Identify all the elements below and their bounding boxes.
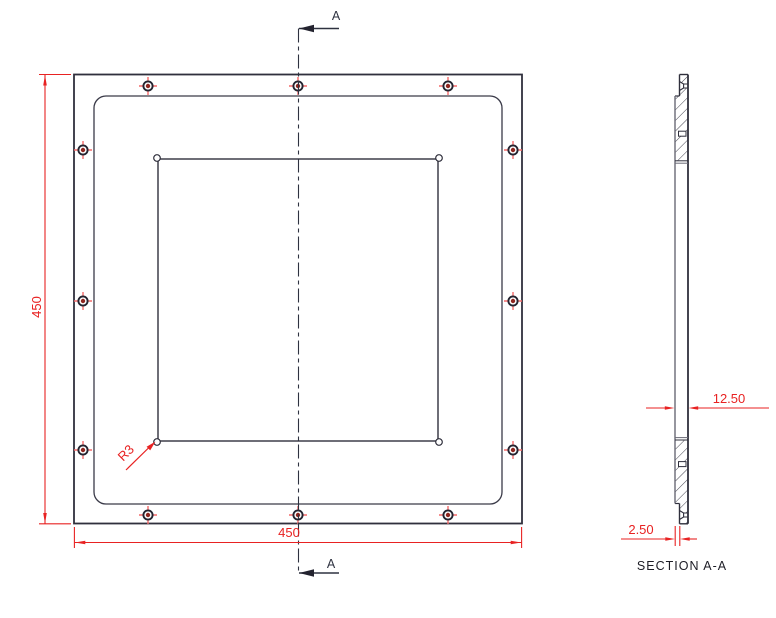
section-label-bottom: A: [327, 557, 336, 571]
section-hatching: [675, 75, 688, 524]
fillet-radius-callout: R3: [115, 442, 156, 471]
dimension-thickness-text: 12.50: [713, 391, 746, 406]
hole-marker: [439, 77, 457, 95]
dimension-step-text: 2.50: [628, 522, 653, 537]
section-arrow-bottom: A: [299, 557, 339, 577]
fillet-radius-text: R3: [115, 442, 137, 464]
hole-marker: [504, 141, 522, 159]
groove-slot-top: [679, 131, 687, 136]
section-view: 12.50 2.50 SECTION A-A: [621, 75, 769, 574]
dimension-height-450: 450: [29, 75, 71, 524]
hole-marker: [74, 441, 92, 459]
hole-marker: [139, 506, 157, 524]
dimension-width-text: 450: [278, 525, 300, 540]
hole-marker: [504, 441, 522, 459]
dimension-step: 2.50: [621, 522, 697, 546]
engineering-drawing-canvas: A A 450 450 R3: [0, 0, 776, 618]
cad-drawing-sheet: A A 450 450 R3: [0, 0, 776, 618]
dimension-width-450: 450: [74, 525, 521, 548]
section-caption: SECTION A-A: [637, 559, 727, 573]
hole-marker: [504, 292, 522, 310]
front-view: A A 450 450 R3: [29, 9, 522, 577]
dimension-thickness: 12.50: [646, 391, 769, 410]
hole-marker: [74, 141, 92, 159]
hole-marker: [139, 77, 157, 95]
section-label-top: A: [332, 9, 341, 23]
dimension-height-text: 450: [29, 296, 44, 318]
hole-marker: [74, 292, 92, 310]
hole-marker: [439, 506, 457, 524]
groove-slot-bottom: [679, 462, 687, 467]
section-arrow-top: A: [299, 9, 341, 32]
